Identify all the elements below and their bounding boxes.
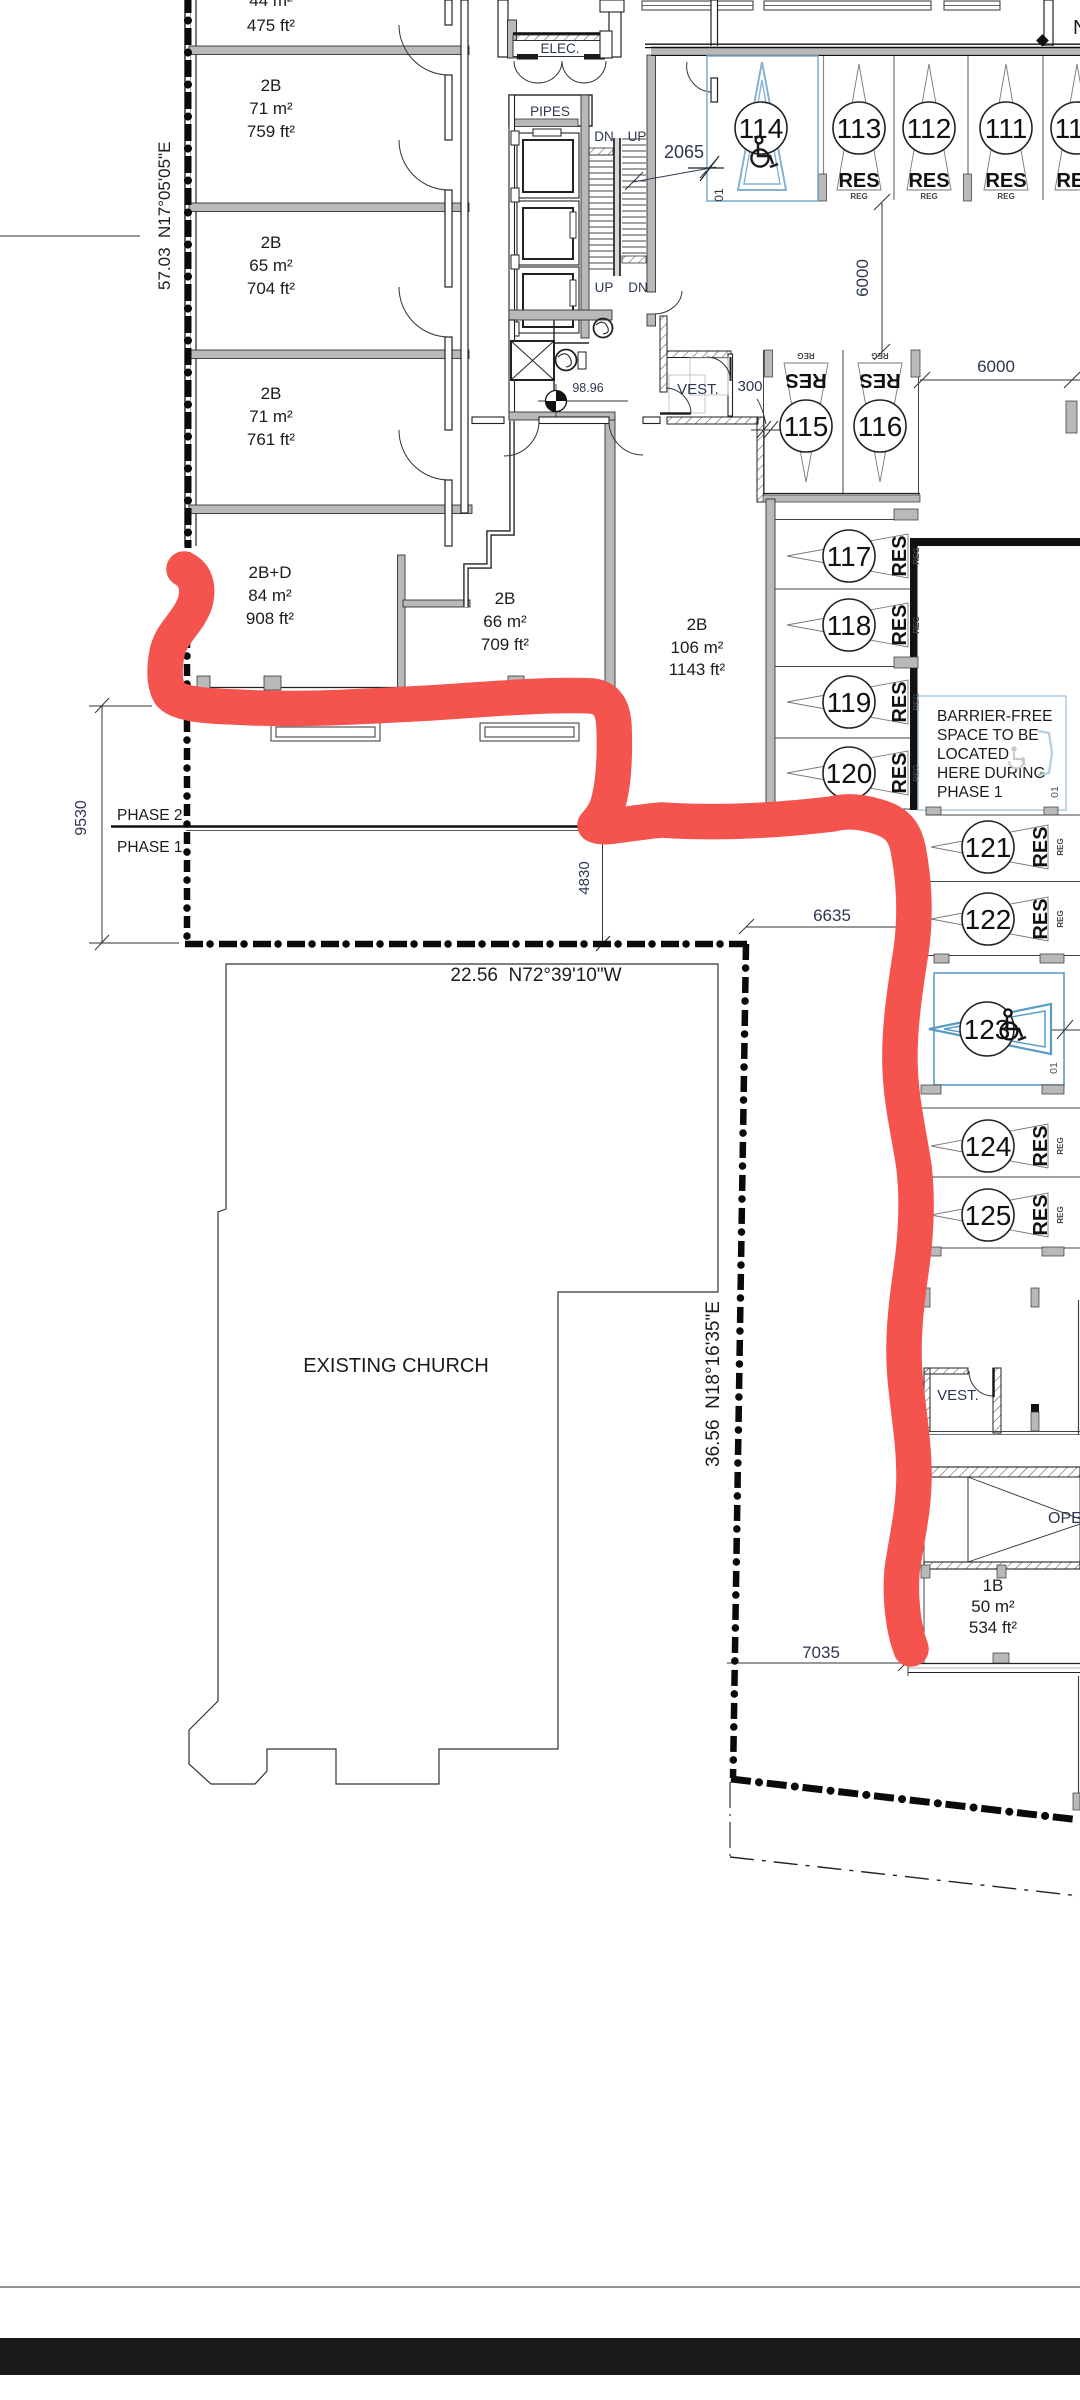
svg-text:122: 122 bbox=[965, 904, 1012, 935]
svg-text:RES: RES bbox=[1030, 826, 1052, 867]
svg-text:115: 115 bbox=[784, 411, 829, 442]
svg-text:1143 ft²: 1143 ft² bbox=[669, 660, 726, 679]
svg-text:01: 01 bbox=[712, 188, 726, 202]
svg-text:908 ft²: 908 ft² bbox=[246, 609, 295, 628]
svg-text:ELEC.: ELEC. bbox=[540, 41, 579, 56]
svg-text:RES: RES bbox=[889, 604, 911, 645]
svg-text:71 m²: 71 m² bbox=[249, 99, 293, 118]
svg-text:2B: 2B bbox=[687, 615, 708, 634]
svg-text:RES: RES bbox=[908, 170, 949, 192]
svg-text:REG: REG bbox=[997, 192, 1014, 201]
svg-text:REG: REG bbox=[1056, 910, 1065, 927]
svg-text:44 m²: 44 m² bbox=[249, 0, 293, 10]
svg-text:2B+D: 2B+D bbox=[249, 563, 292, 582]
svg-text:1B: 1B bbox=[983, 1576, 1004, 1595]
svg-text:RES: RES bbox=[985, 170, 1026, 192]
svg-text:REG: REG bbox=[920, 192, 937, 201]
svg-text:123: 123 bbox=[964, 1014, 1011, 1045]
svg-text:REG: REG bbox=[912, 764, 921, 781]
svg-text:111: 111 bbox=[985, 113, 1028, 144]
svg-text:REG: REG bbox=[871, 351, 888, 360]
svg-text:2B: 2B bbox=[261, 384, 282, 403]
svg-text:71 m²: 71 m² bbox=[249, 407, 293, 426]
svg-text:RES: RES bbox=[1030, 898, 1052, 939]
svg-text:475 ft²: 475 ft² bbox=[247, 16, 296, 35]
svg-text:BARRIER-FREE: BARRIER-FREE bbox=[937, 708, 1052, 725]
svg-text:121: 121 bbox=[965, 832, 1012, 863]
svg-text:125: 125 bbox=[965, 1200, 1012, 1231]
svg-text:6635: 6635 bbox=[813, 906, 851, 925]
svg-text:110: 110 bbox=[1055, 113, 1080, 144]
svg-text:50 m²: 50 m² bbox=[971, 1597, 1015, 1616]
svg-text:84 m²: 84 m² bbox=[248, 586, 292, 605]
svg-text:REG: REG bbox=[912, 547, 921, 564]
svg-text:RES: RES bbox=[889, 681, 911, 722]
svg-text:66 m²: 66 m² bbox=[483, 612, 527, 631]
svg-text:2B: 2B bbox=[261, 233, 282, 252]
svg-text:113: 113 bbox=[837, 113, 882, 144]
svg-text:118: 118 bbox=[827, 610, 872, 641]
svg-text:LOCATED: LOCATED bbox=[937, 746, 1009, 763]
svg-text:REG: REG bbox=[912, 616, 921, 633]
svg-text:RES: RES bbox=[889, 535, 911, 576]
svg-text:120: 120 bbox=[826, 758, 873, 789]
svg-text:761 ft²: 761 ft² bbox=[247, 430, 296, 449]
svg-text:300: 300 bbox=[737, 378, 762, 395]
svg-text:DN: DN bbox=[628, 280, 648, 295]
svg-text:2065: 2065 bbox=[664, 142, 704, 162]
svg-text:HERE DURING: HERE DURING bbox=[937, 765, 1046, 782]
svg-text:704 ft²: 704 ft² bbox=[247, 279, 296, 298]
svg-text:7035: 7035 bbox=[802, 1643, 840, 1662]
svg-text:2B: 2B bbox=[495, 589, 516, 608]
svg-text:57.03 N17°05'05"E: 57.03 N17°05'05"E bbox=[155, 142, 174, 290]
svg-text:534 ft²: 534 ft² bbox=[969, 1618, 1018, 1637]
svg-text:6000: 6000 bbox=[853, 259, 872, 297]
svg-text:106 m²: 106 m² bbox=[671, 638, 724, 657]
svg-text:759 ft²: 759 ft² bbox=[247, 122, 296, 141]
svg-text:UP: UP bbox=[595, 280, 614, 295]
svg-text:RES: RES bbox=[1030, 1125, 1052, 1166]
svg-text:117: 117 bbox=[827, 541, 872, 572]
svg-text:SPACE TO BE: SPACE TO BE bbox=[937, 727, 1039, 744]
svg-text:OPEN: OPEN bbox=[1048, 1510, 1080, 1527]
svg-text:N: N bbox=[1073, 17, 1080, 39]
svg-text:4830: 4830 bbox=[576, 861, 593, 894]
svg-text:DN: DN bbox=[594, 129, 614, 144]
svg-text:PHASE 1: PHASE 1 bbox=[937, 784, 1002, 801]
svg-text:REG: REG bbox=[1056, 1206, 1065, 1223]
svg-text:RES: RES bbox=[859, 369, 900, 391]
svg-text:2B: 2B bbox=[261, 76, 282, 95]
svg-text:112: 112 bbox=[907, 113, 952, 144]
svg-text:REG: REG bbox=[1056, 838, 1065, 855]
svg-text:22.56 N72°39'10"W: 22.56 N72°39'10"W bbox=[450, 965, 621, 986]
svg-text:REG: REG bbox=[1056, 1137, 1065, 1154]
svg-text:VEST.: VEST. bbox=[937, 1387, 979, 1404]
svg-text:01: 01 bbox=[1049, 786, 1061, 798]
svg-text:116: 116 bbox=[858, 411, 903, 442]
svg-text:RES: RES bbox=[1056, 170, 1080, 192]
svg-text:PIPES: PIPES bbox=[530, 104, 570, 119]
svg-text:UP: UP bbox=[628, 129, 647, 144]
svg-text:119: 119 bbox=[827, 687, 872, 718]
svg-text:01: 01 bbox=[1048, 1062, 1060, 1074]
svg-text:36.56 N18°16'35"E: 36.56 N18°16'35"E bbox=[703, 1301, 724, 1467]
svg-text:124: 124 bbox=[965, 1131, 1012, 1162]
svg-text:RES: RES bbox=[889, 752, 911, 793]
svg-text:EXISTING CHURCH: EXISTING CHURCH bbox=[303, 1355, 489, 1377]
svg-text:RES: RES bbox=[785, 369, 826, 391]
svg-text:709 ft²: 709 ft² bbox=[481, 635, 530, 654]
svg-text:REG: REG bbox=[850, 192, 867, 201]
svg-text:RES: RES bbox=[1030, 1194, 1052, 1235]
svg-text:PHASE 2: PHASE 2 bbox=[117, 807, 182, 824]
svg-text:65 m²: 65 m² bbox=[249, 256, 293, 275]
svg-text:REG: REG bbox=[797, 351, 814, 360]
svg-text:98.96: 98.96 bbox=[572, 381, 603, 395]
svg-text:9530: 9530 bbox=[73, 800, 90, 836]
svg-text:PHASE 1: PHASE 1 bbox=[117, 839, 182, 856]
svg-text:RES: RES bbox=[838, 170, 879, 192]
svg-text:6000: 6000 bbox=[977, 357, 1015, 376]
